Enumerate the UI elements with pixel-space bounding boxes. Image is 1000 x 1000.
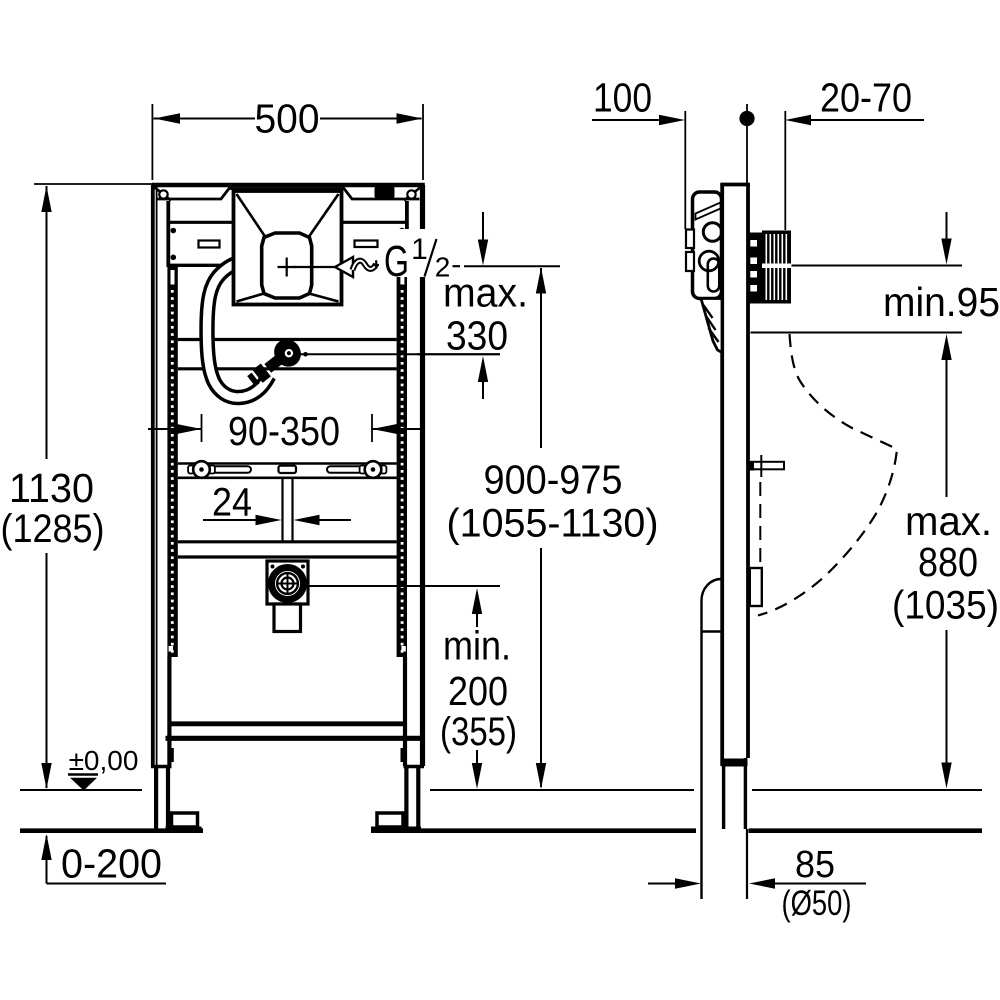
svg-text:(355): (355) xyxy=(440,710,517,754)
svg-text:max.: max. xyxy=(443,270,528,316)
svg-text:24: 24 xyxy=(212,481,252,525)
svg-text:200: 200 xyxy=(448,668,508,714)
svg-text:(1035): (1035) xyxy=(892,584,999,628)
svg-text:880: 880 xyxy=(918,539,978,585)
svg-text:(Ø50): (Ø50) xyxy=(782,884,852,923)
svg-text:20-70: 20-70 xyxy=(820,75,912,121)
svg-text:1130: 1130 xyxy=(9,465,94,511)
svg-text:0-200: 0-200 xyxy=(61,841,162,887)
svg-text:100: 100 xyxy=(593,75,652,121)
svg-text:1: 1 xyxy=(411,233,428,266)
svg-text:G: G xyxy=(384,237,409,286)
svg-text:500: 500 xyxy=(255,96,320,142)
svg-text:max.: max. xyxy=(905,498,992,544)
svg-text:min.: min. xyxy=(443,623,511,669)
svg-text:(1055-1130): (1055-1130) xyxy=(447,502,659,546)
svg-text:85: 85 xyxy=(795,844,835,886)
svg-text:(1285): (1285) xyxy=(1,507,105,551)
svg-text:±0,00: ±0,00 xyxy=(69,745,139,776)
svg-text:330: 330 xyxy=(446,313,508,359)
svg-text:min.95: min.95 xyxy=(883,279,1000,325)
svg-text:900-975: 900-975 xyxy=(484,457,623,503)
svg-text:90-350: 90-350 xyxy=(228,408,340,454)
